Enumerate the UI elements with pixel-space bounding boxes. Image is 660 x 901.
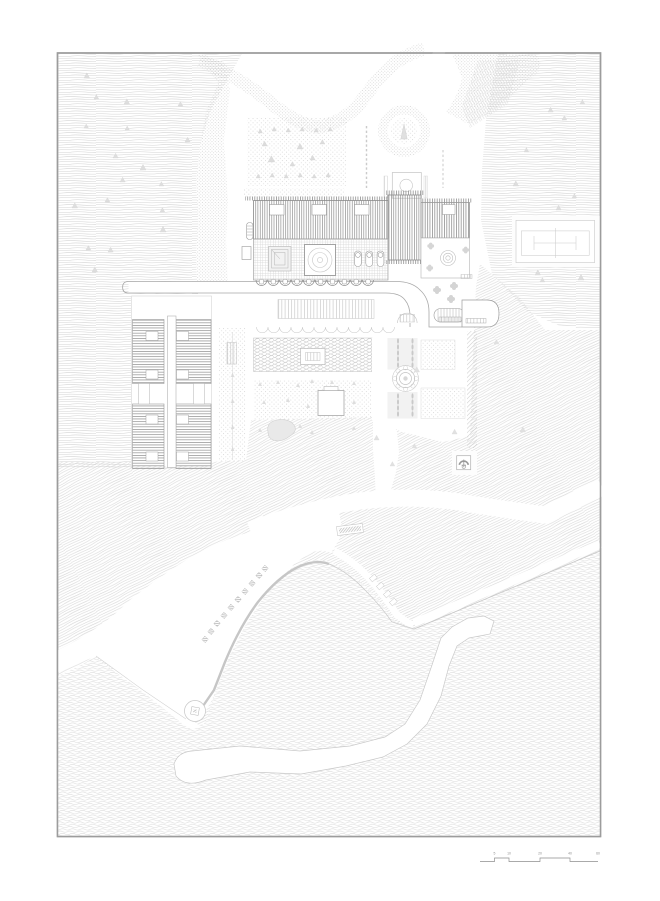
svg-text:60: 60 xyxy=(596,852,600,856)
svg-text:10: 10 xyxy=(507,852,511,856)
svg-text:5: 5 xyxy=(494,852,496,856)
svg-text:20: 20 xyxy=(538,852,542,856)
svg-text:40: 40 xyxy=(568,852,572,856)
